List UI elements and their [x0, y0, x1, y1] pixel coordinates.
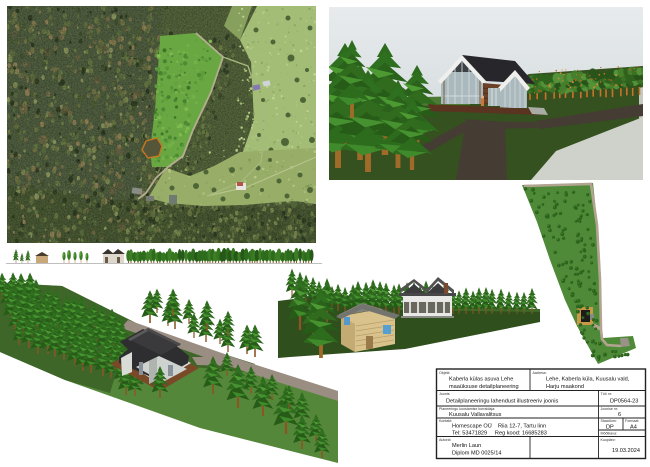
svg-text:DP0564-23: DP0564-23 — [610, 399, 638, 405]
svg-text:Planeeringu koostamise korrald: Planeeringu koostamise korraldaja: — [439, 407, 495, 411]
svg-text:Autorid:: Autorid: — [439, 438, 451, 442]
svg-text:Aadress:: Aadress: — [533, 371, 547, 375]
svg-text:Homescape OÜ Riia 12-7, Tar: Homescape OÜ Riia 12-7, Tartu linn — [452, 423, 546, 430]
svg-text:Lehe, Kaberla küla, Kuusalu va: Lehe, Kaberla küla, Kuusalu vald, — [546, 377, 630, 383]
svg-text:Detailplaneeringu lahendust il: Detailplaneeringu lahendust illustreeriv… — [446, 399, 558, 405]
svg-text:Kuusalu Vallavalitsus: Kuusalu Vallavalitsus — [449, 412, 502, 418]
svg-text:Joonise nr:: Joonise nr: — [601, 407, 619, 411]
svg-text:maaüksuse detailplaneering: maaüksuse detailplaneering — [449, 384, 519, 390]
svg-text:6: 6 — [618, 412, 621, 418]
svg-text:19.03.2024: 19.03.2024 — [612, 448, 640, 454]
svg-text:Joonis:: Joonis: — [439, 392, 450, 396]
svg-text:Diplom MD 0025/14: Diplom MD 0025/14 — [452, 451, 501, 457]
svg-text:Kaberla külas asuva Lehe: Kaberla külas asuva Lehe — [449, 377, 513, 383]
svg-text:Kuupäev:: Kuupäev: — [601, 438, 616, 442]
svg-text:A4: A4 — [630, 425, 637, 431]
svg-text:Tel: 53471829 Reg kood: 16: Tel: 53471829 Reg kood: 16685283 — [452, 431, 547, 437]
svg-text:Staadium:: Staadium: — [601, 419, 617, 423]
svg-text:Merlin Laun: Merlin Laun — [452, 443, 481, 449]
svg-text:Kontakt:: Kontakt: — [439, 419, 452, 423]
svg-text:Formaat:: Formaat: — [625, 419, 639, 423]
svg-text:Harju maakond: Harju maakond — [546, 384, 584, 390]
svg-text:Objekt:: Objekt: — [439, 371, 450, 375]
svg-text:DP: DP — [606, 425, 614, 431]
svg-text:Mõõtkava:: Mõõtkava: — [601, 432, 618, 436]
svg-text:Töö nr:: Töö nr: — [601, 392, 612, 396]
